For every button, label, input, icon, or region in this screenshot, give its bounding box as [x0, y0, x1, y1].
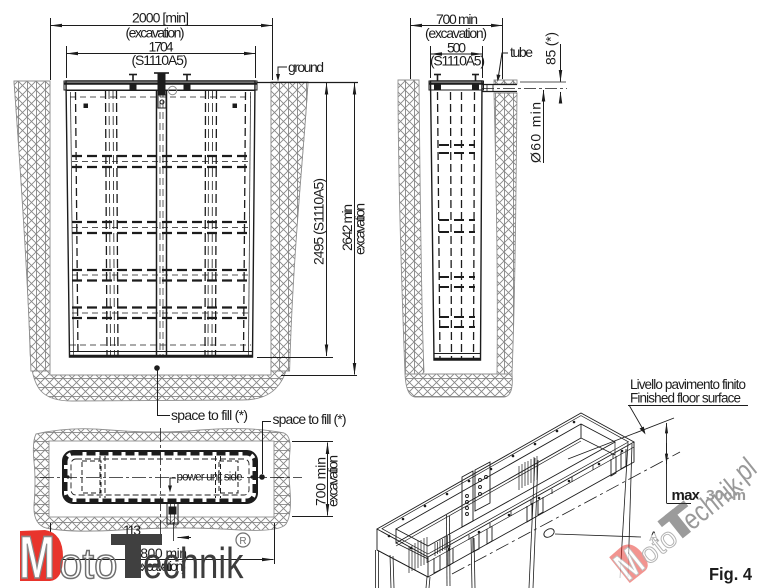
svg-text:ground: ground	[288, 59, 324, 75]
svg-text:space to fill (*): space to fill (*)	[273, 411, 347, 427]
svg-text:Finished floor surface: Finished floor surface	[630, 391, 741, 406]
svg-text:Ø60 min: Ø60 min	[528, 102, 544, 163]
svg-text:30cm: 30cm	[706, 487, 746, 504]
svg-text:echnik: echnik	[143, 539, 244, 588]
svg-text:excavation: excavation	[352, 203, 368, 255]
svg-text:(S1110A5): (S1110A5)	[430, 53, 485, 69]
svg-text:power unit side: power unit side	[177, 472, 243, 484]
svg-text:oto: oto	[59, 540, 118, 588]
svg-text:excavation: excavation	[325, 455, 341, 507]
svg-text:tube: tube	[510, 44, 533, 60]
svg-text:85 (*): 85 (*)	[543, 32, 559, 65]
svg-text:Fig. 4: Fig. 4	[709, 564, 752, 584]
svg-text:R: R	[239, 536, 246, 547]
svg-text:2495 (S1110A5): 2495 (S1110A5)	[311, 178, 327, 265]
svg-text:(S1110A5): (S1110A5)	[132, 52, 188, 68]
svg-text:2000 [min]: 2000 [min]	[132, 10, 189, 26]
svg-text:M: M	[19, 525, 55, 588]
svg-text:space to fill (*): space to fill (*)	[171, 407, 248, 423]
